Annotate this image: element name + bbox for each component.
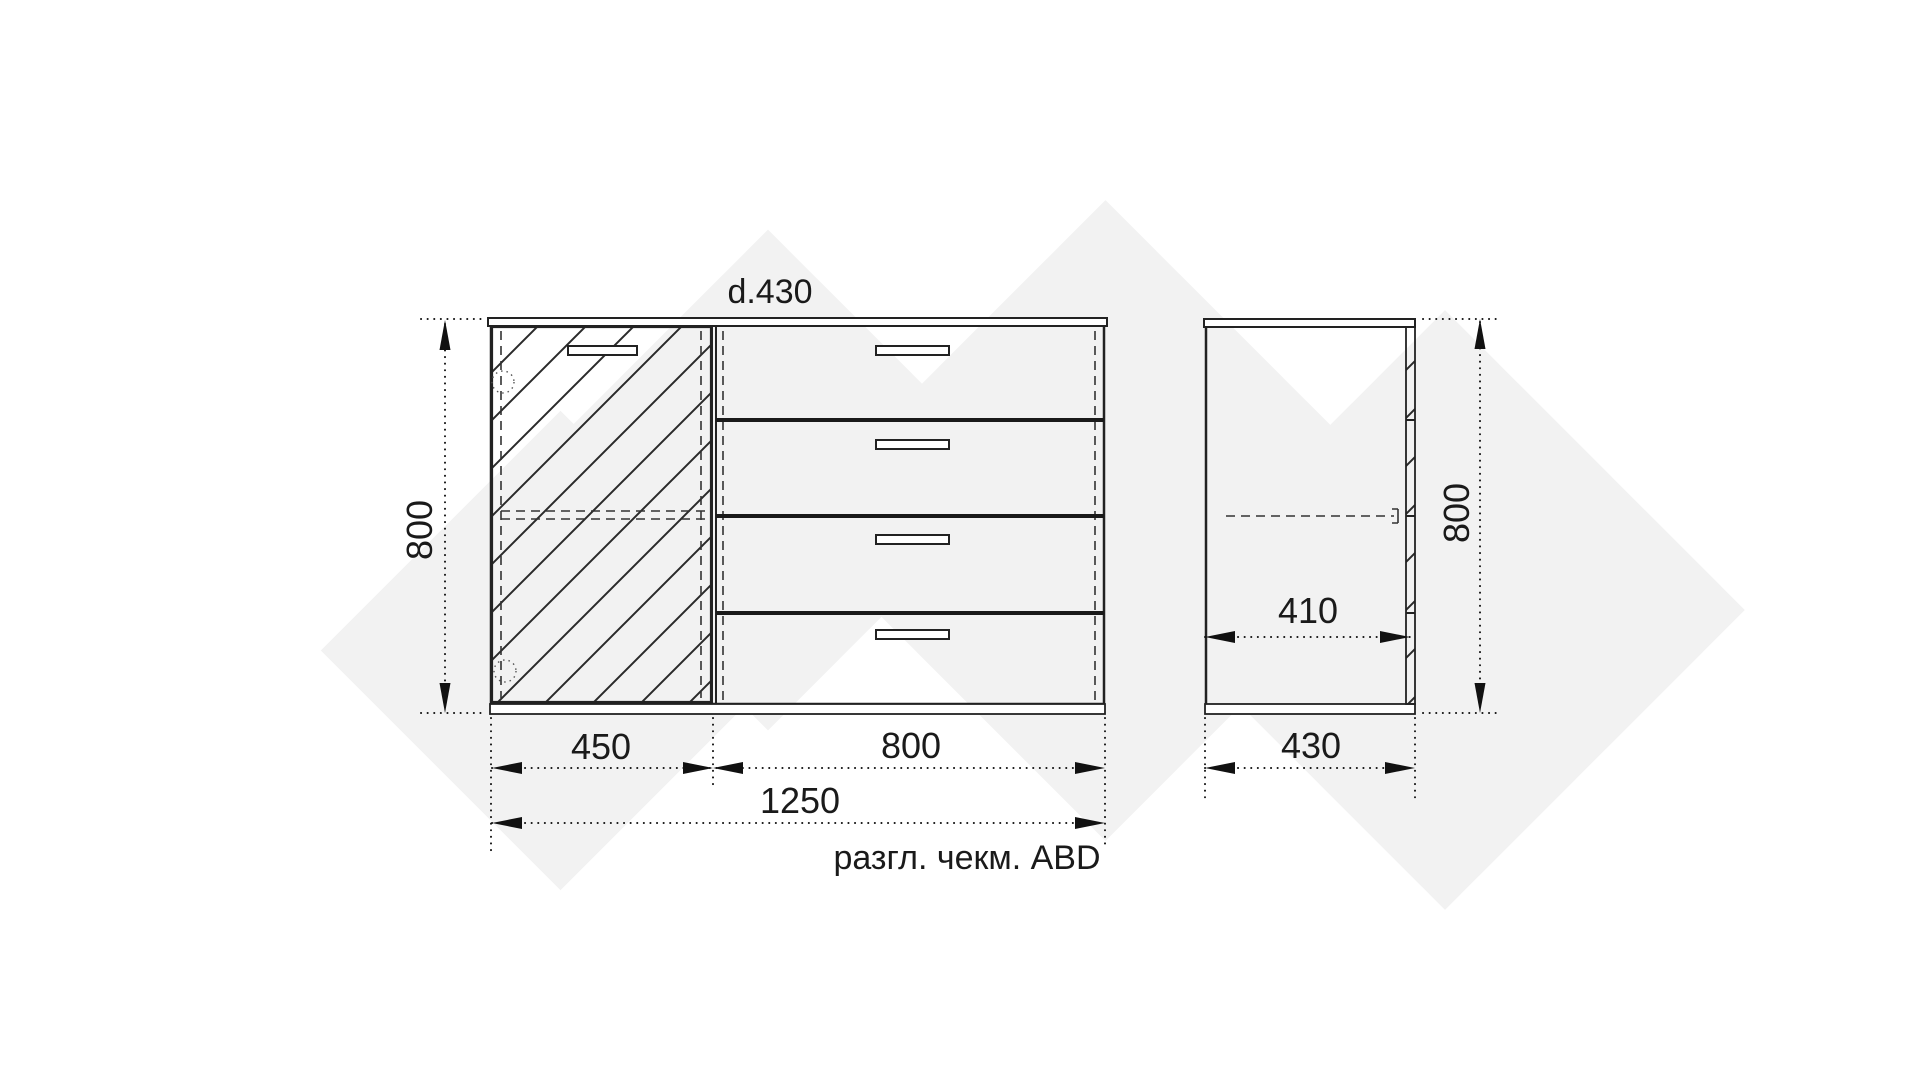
dim-side-inner-410	[1205, 631, 1410, 643]
front-height-dim-text: 800	[402, 500, 438, 560]
divider	[712, 326, 716, 704]
drawer-handle	[876, 535, 949, 544]
drawer-handle	[876, 440, 949, 449]
drawer-handle	[876, 630, 949, 639]
side-view	[1204, 319, 1415, 714]
drawing-caption: разгл. чекм. ABD	[833, 841, 1100, 875]
drawer-stack	[716, 331, 1104, 700]
drawing-canvas: d.430 800 450 800 1250 разгл. чекм. ABD …	[0, 0, 1920, 1080]
drawer-width-dim-text: 800	[881, 728, 941, 764]
side-inner-depth-dim-text: 410	[1278, 593, 1338, 629]
front-view	[488, 318, 1107, 714]
technical-drawing-linework	[0, 0, 1920, 1080]
door-width-dim-text: 450	[571, 729, 631, 765]
top-depth-label: d.430	[727, 275, 812, 309]
side-depth-dim-text: 430	[1281, 728, 1341, 764]
door-panel	[492, 327, 711, 702]
door-handle	[568, 346, 637, 355]
side-height-dim-text: 800	[1439, 483, 1475, 543]
overall-width-dim-text: 1250	[760, 783, 840, 819]
drawer-handle	[876, 346, 949, 355]
